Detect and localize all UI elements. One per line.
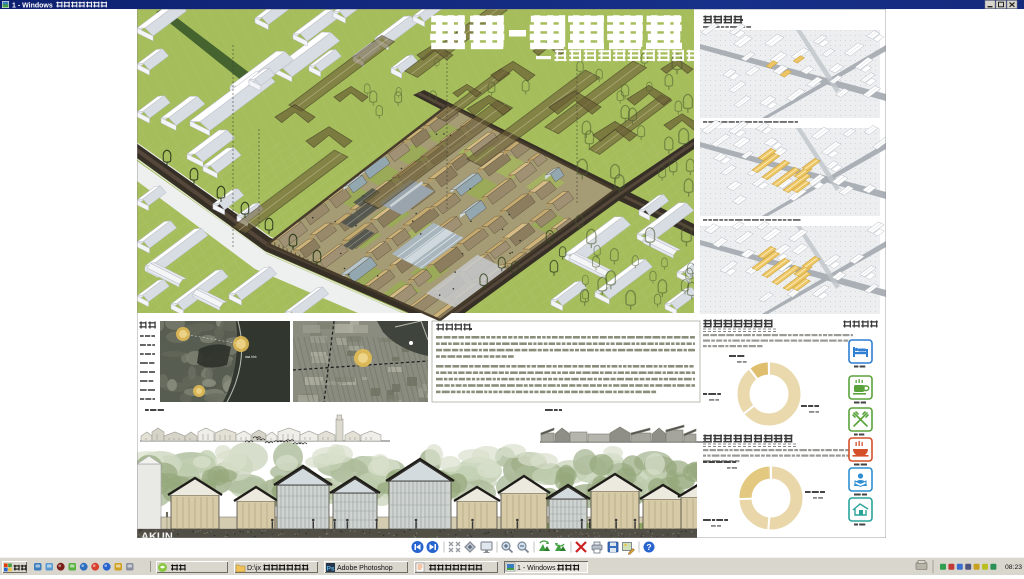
svg-text:1 - Windows: 1 - Windows [517,565,556,572]
svg-text:1 - Windows: 1 - Windows [12,2,53,9]
svg-text:08:23: 08:23 [1005,564,1022,571]
svg-text:?: ? [646,542,651,552]
svg-text:aaa bbb: aaa bbb [245,355,257,359]
svg-text:Adobe Photoshop: Adobe Photoshop [337,565,393,572]
svg-text:AKUN: AKUN [141,531,173,538]
svg-text:D:\jx: D:\jx [247,565,262,572]
svg-text:Ps: Ps [327,565,335,572]
